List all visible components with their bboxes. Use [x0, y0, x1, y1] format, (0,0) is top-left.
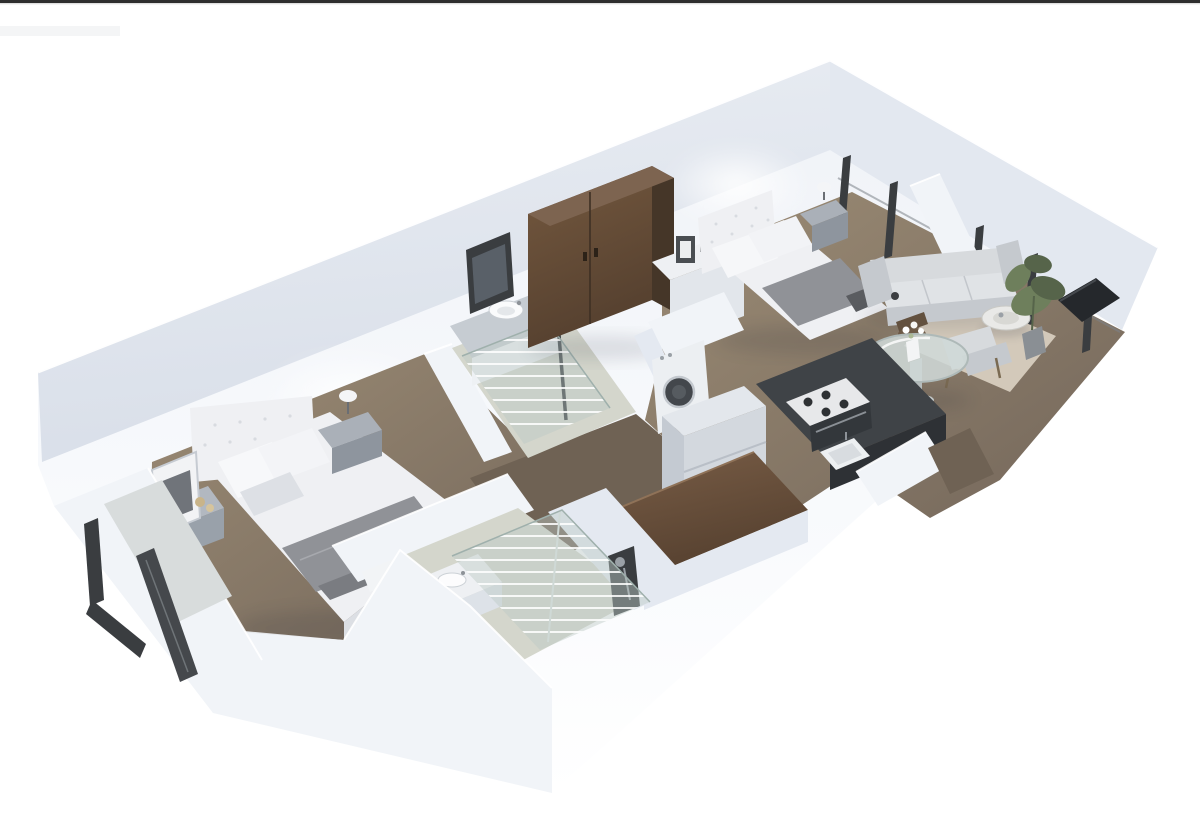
vase: [906, 338, 920, 362]
sink-bowl: [497, 307, 515, 316]
decor-jar: [206, 504, 214, 512]
table-decor: [999, 313, 1004, 318]
floor-plan-render: [0, 0, 1200, 826]
handle: [583, 252, 587, 261]
picture-mat: [680, 241, 691, 258]
faucet: [517, 301, 521, 305]
scan-smudge: [0, 26, 120, 36]
faucet: [461, 571, 465, 575]
table-lamp: [817, 182, 831, 192]
shower-head: [615, 557, 625, 567]
top-edge-bar: [0, 0, 1200, 3]
throw-pillow: [891, 292, 899, 300]
top-edge-line: [0, 3, 1200, 4]
handle: [594, 248, 598, 257]
table-lamp: [339, 390, 357, 402]
washer-drum: [672, 385, 686, 399]
decor-jar: [195, 497, 205, 507]
floor-plan-stage: [0, 0, 1200, 826]
table-ring: [993, 312, 1019, 325]
